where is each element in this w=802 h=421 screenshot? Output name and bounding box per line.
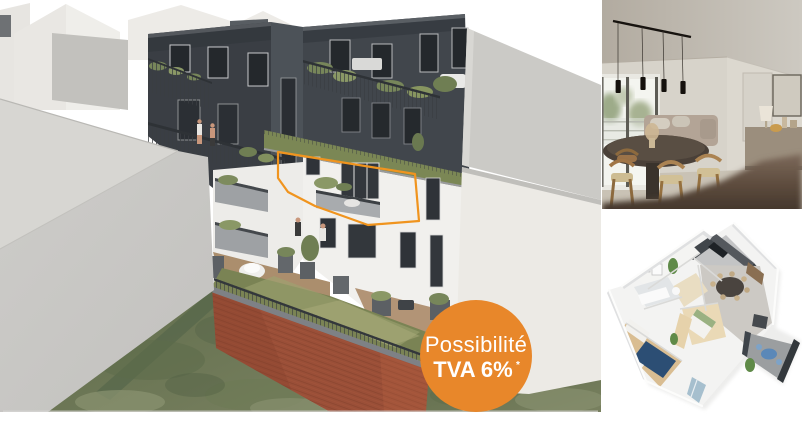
svg-text:*: *: [516, 360, 520, 371]
svg-text:TVA 6%: TVA 6%: [433, 357, 512, 382]
svg-text:Possibilité: Possibilité: [425, 332, 527, 357]
